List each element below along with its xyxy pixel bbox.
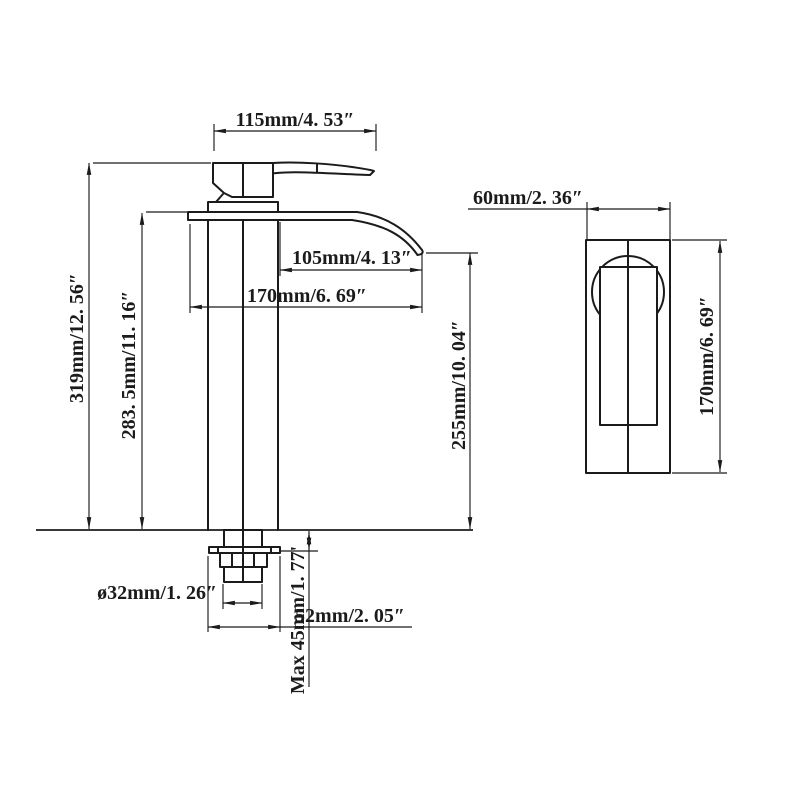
label-spout-length: 170mm/6. 69″ bbox=[247, 285, 367, 307]
handle-joint bbox=[216, 194, 223, 202]
drawing-sheet: 115mm/4. 53″ 105mm/4. 13″ 170mm/6. 69″ 3… bbox=[0, 0, 800, 800]
label-side-width: 60mm/2. 36″ bbox=[473, 187, 583, 209]
label-side-height: 170mm/6. 69″ bbox=[696, 296, 718, 416]
faucet-side-view bbox=[586, 240, 670, 473]
label-spout-reach: 105mm/4. 13″ bbox=[292, 247, 412, 269]
faucet-dimension-drawing: 115mm/4. 53″ 105mm/4. 13″ 170mm/6. 69″ 3… bbox=[0, 0, 800, 800]
label-thread-diameter: ø32mm/1. 26″ bbox=[97, 582, 217, 604]
faucet-front-view bbox=[36, 163, 473, 582]
label-body-height: 283. 5mm/11. 16″ bbox=[118, 291, 140, 440]
label-top-width: 115mm/4. 53″ bbox=[236, 109, 355, 131]
label-max-deck-thickness: Max 45mm/1. 77' bbox=[287, 546, 309, 694]
label-spout-tip-height: 255mm/10. 04″ bbox=[448, 320, 470, 450]
label-overall-height: 319mm/12. 56″ bbox=[66, 273, 88, 403]
handle-collar bbox=[208, 202, 278, 212]
handle-lever bbox=[273, 163, 374, 175]
label-base-width: 52mm/2. 05″ bbox=[295, 605, 405, 627]
